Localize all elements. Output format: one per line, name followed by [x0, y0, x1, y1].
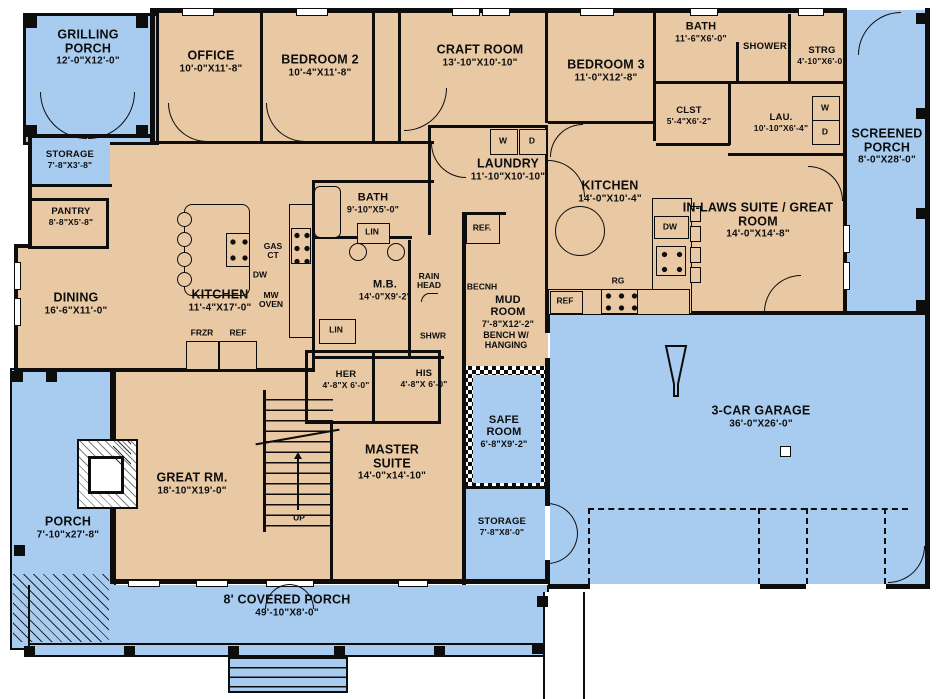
- wall: [312, 356, 444, 359]
- porch-post: [434, 646, 445, 657]
- window-marker: [482, 8, 510, 16]
- porch-post: [916, 300, 927, 311]
- wall: [372, 350, 375, 424]
- microwave-oven-label: MW OVEN: [254, 291, 288, 309]
- room-label-covered-porch: 8' COVERED PORCH49'-10"X8'-0": [162, 593, 412, 618]
- wall: [150, 8, 155, 144]
- window-marker: [452, 8, 480, 16]
- garage-door-dash: [588, 508, 590, 584]
- room-label-bath-central: BATH9'-10"X5'-0": [318, 193, 428, 216]
- porch-post: [136, 16, 148, 28]
- porch-post: [136, 125, 148, 137]
- stair-direction-line: [297, 458, 299, 510]
- porch-post: [228, 646, 239, 657]
- garage-door-dash: [588, 508, 908, 510]
- window-marker: [843, 262, 850, 290]
- shower-label: SHWR: [420, 332, 446, 341]
- island-chair: [177, 272, 192, 287]
- room-label-dining: DINING16'-6"X11'-0": [16, 291, 136, 316]
- wall: [728, 153, 845, 156]
- chair: [690, 247, 701, 263]
- window-marker: [182, 8, 214, 16]
- window-marker: [14, 262, 21, 290]
- garage-door-dash: [884, 508, 886, 584]
- window-marker: [580, 8, 614, 16]
- refrigerator-label: REF: [230, 329, 247, 338]
- stove-icon: [656, 246, 686, 276]
- wall: [28, 184, 112, 187]
- window-marker: [798, 8, 824, 16]
- porch-post: [25, 16, 37, 28]
- kitchen-counter: [289, 204, 313, 338]
- porch-post: [916, 108, 927, 119]
- stair-arrow-icon: [294, 452, 302, 459]
- wall: [428, 125, 548, 128]
- dryer-label: D: [822, 128, 828, 137]
- room-label-great-rm: GREAT RM.18'-10"X19'-0": [112, 471, 272, 496]
- room-label-her-closet: HER4'-8"X 6'-0": [320, 370, 372, 390]
- room-label-screened-porch: SCREENED PORCH8'-0"X28'-0": [844, 128, 930, 167]
- dishwasher-label: DW: [253, 271, 267, 280]
- island-chair: [177, 252, 192, 267]
- chair: [690, 267, 701, 283]
- porch-post: [12, 371, 23, 382]
- wall: [28, 246, 108, 249]
- room-label-inlaws-suite: IN-LAWS SUITE / GREAT ROOM14'-0"X14'-8": [668, 202, 848, 241]
- porch-post: [532, 643, 543, 654]
- porch-post: [124, 646, 135, 657]
- porch-post: [24, 646, 35, 657]
- wall: [14, 368, 314, 372]
- range-icon: [601, 289, 638, 314]
- dining-table: [555, 206, 605, 256]
- sidewalk: [543, 592, 585, 699]
- room-label-storage-top: STORAGE7'-8"X3'-8": [25, 150, 115, 170]
- garage-area: [550, 315, 925, 584]
- washer-label: W: [821, 104, 829, 113]
- wall: [760, 584, 806, 589]
- washer-label: W: [499, 137, 507, 146]
- window-marker: [128, 580, 160, 587]
- mud-room-note: BENCH W/ HANGING: [464, 331, 548, 351]
- wall: [465, 486, 547, 489]
- porch-post: [334, 646, 345, 657]
- porch-deck-boards: [13, 574, 109, 642]
- wall: [545, 358, 550, 506]
- room-label-lau: LAU.10'-10"X6'-4": [731, 113, 831, 133]
- window-marker: [296, 8, 328, 16]
- wall: [312, 180, 434, 183]
- porch-post: [916, 13, 927, 24]
- wall: [656, 143, 730, 146]
- room-label-storage-bottom: STORAGE7'-8"X8'-0": [452, 517, 552, 537]
- porch-post: [46, 371, 57, 382]
- porch-post: [916, 208, 927, 219]
- wall: [886, 584, 930, 589]
- rain-head-label: RAIN HEAD: [412, 272, 446, 290]
- dishwasher-label: DW: [663, 223, 677, 232]
- garage-door-dash: [806, 508, 808, 584]
- gas-cooktop-label: GAS CT: [260, 242, 286, 260]
- sink-icon: [349, 243, 367, 261]
- porch-post: [14, 545, 25, 556]
- freezer-label: FRZR: [191, 329, 214, 338]
- room-label-bedroom-3: BEDROOM 311'-0"X12'-8": [531, 58, 681, 83]
- fireplace-flue: [113, 441, 131, 465]
- room-label-garage: 3-CAR GARAGE36'-0"X26'-0": [686, 404, 836, 429]
- room-label-mud-room: MUD ROOM7'-8"X12'-2": [478, 295, 538, 329]
- range-label: RG: [612, 277, 625, 286]
- room-label-master-suite: MASTER SUITE14'-0"x14'-10": [347, 444, 437, 483]
- room-label-strg: STRG4'-10"X6'-0": [787, 46, 857, 66]
- bench-label: BECNH: [467, 283, 497, 292]
- wall: [656, 81, 845, 84]
- room-label-porch: PORCH7'-10"x27'-8": [8, 515, 128, 540]
- window-marker: [690, 8, 718, 16]
- window-marker: [398, 580, 428, 587]
- wall: [398, 8, 401, 141]
- wall: [548, 121, 655, 124]
- room-label-his-closet: HIS4'-8"X 6'-0": [398, 369, 450, 389]
- gas-cooktop-icon: [291, 228, 311, 264]
- wall: [28, 198, 108, 201]
- room-label-safe-room: SAFE ROOM6'-8"X9'-2": [474, 415, 534, 449]
- sink-icon: [387, 243, 405, 261]
- freezer-box: [186, 341, 219, 370]
- refrigerator-label: REF: [557, 297, 574, 306]
- wall: [925, 8, 930, 588]
- floor-plan: GRILLING PORCH12'-0"X12'-0" OFFICE10'-0"…: [0, 0, 950, 699]
- window-marker: [196, 580, 228, 587]
- room-label-bedroom-2: BEDROOM 210'-4"X11'-8": [245, 53, 395, 78]
- room-label-grilling-porch: GRILLING PORCH12'-0"X12'-0": [40, 29, 136, 68]
- front-steps: [228, 657, 348, 693]
- refrigerator-box: [219, 341, 257, 370]
- room-label-kitchen-inlaws: KITCHEN14'-0"X10'-4": [550, 179, 670, 204]
- room-label-clst: CLST5'-4"X6'-2": [644, 106, 734, 126]
- dryer-label: D: [529, 137, 535, 146]
- cooktop-icon: [226, 233, 250, 267]
- porch-post: [25, 125, 37, 137]
- floor-drain-icon: [780, 446, 791, 457]
- linen-label: LIN: [365, 228, 379, 237]
- wall: [548, 584, 590, 589]
- wall: [150, 141, 434, 144]
- linen-label: LIN: [329, 326, 343, 335]
- island-chair: [177, 232, 192, 247]
- island-chair: [177, 212, 192, 227]
- garage-door-dash: [758, 508, 760, 584]
- up-label: UP: [293, 514, 305, 523]
- porch-edge-line: [28, 643, 545, 645]
- refrigerator-label: REF.: [473, 224, 491, 233]
- room-label-pantry: PANTRY8'-8"X5'-8": [26, 207, 116, 227]
- attic-access-icon: [664, 344, 688, 398]
- porch-post: [537, 596, 548, 607]
